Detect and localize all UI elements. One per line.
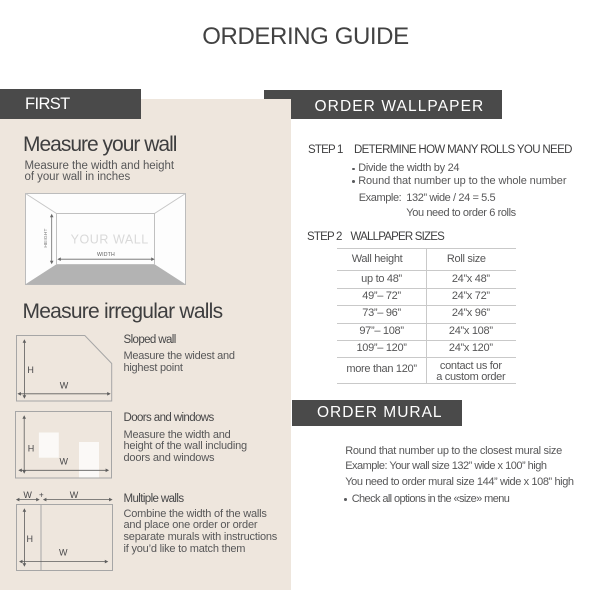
svg-text:W: W bbox=[59, 548, 68, 558]
svg-text:H: H bbox=[28, 443, 35, 453]
svg-text:YOUR WALL: YOUR WALL bbox=[71, 233, 149, 247]
svg-text:W: W bbox=[23, 490, 32, 500]
svg-text:HEIGHT: HEIGHT bbox=[43, 228, 49, 247]
svg-text:+: + bbox=[39, 491, 44, 500]
svg-text:W: W bbox=[70, 490, 79, 500]
svg-text:WIDTH: WIDTH bbox=[97, 252, 115, 258]
svg-text:W: W bbox=[60, 381, 69, 391]
svg-text:H: H bbox=[27, 534, 34, 544]
svg-text:W: W bbox=[59, 457, 68, 467]
svg-text:H: H bbox=[27, 365, 33, 375]
